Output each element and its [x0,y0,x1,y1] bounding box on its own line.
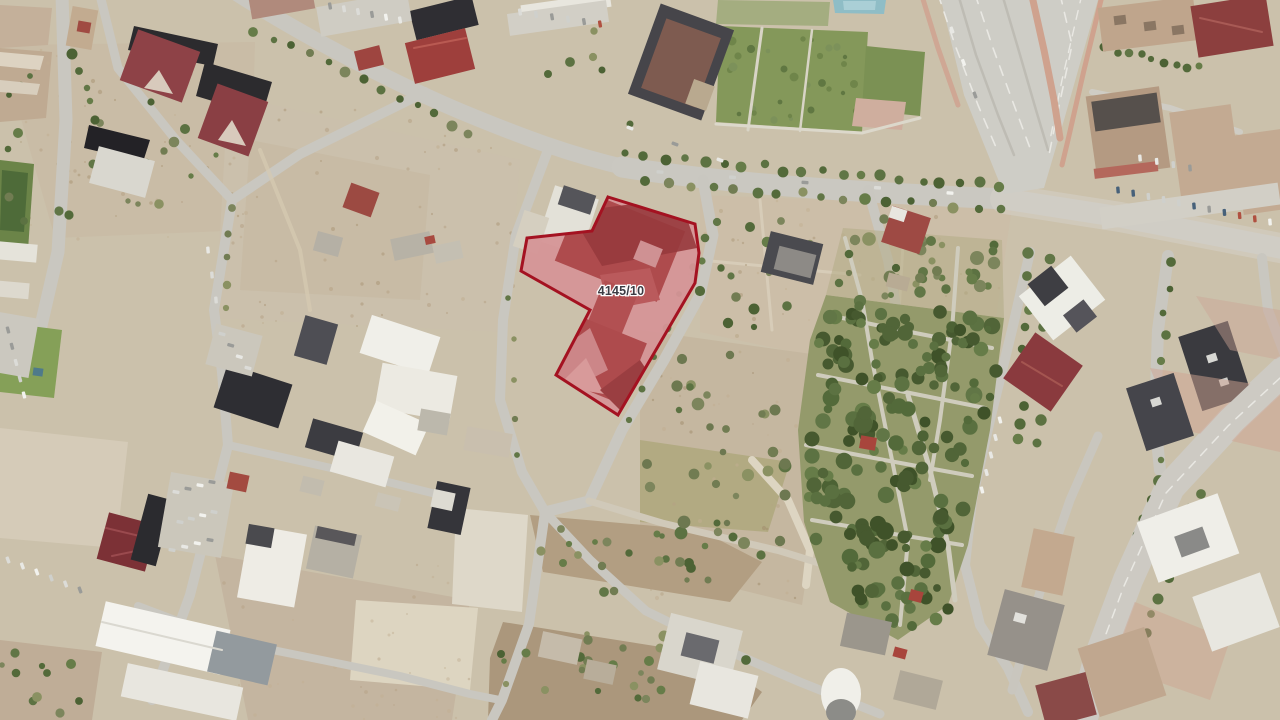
svg-text:4145/10: 4145/10 [598,284,645,298]
